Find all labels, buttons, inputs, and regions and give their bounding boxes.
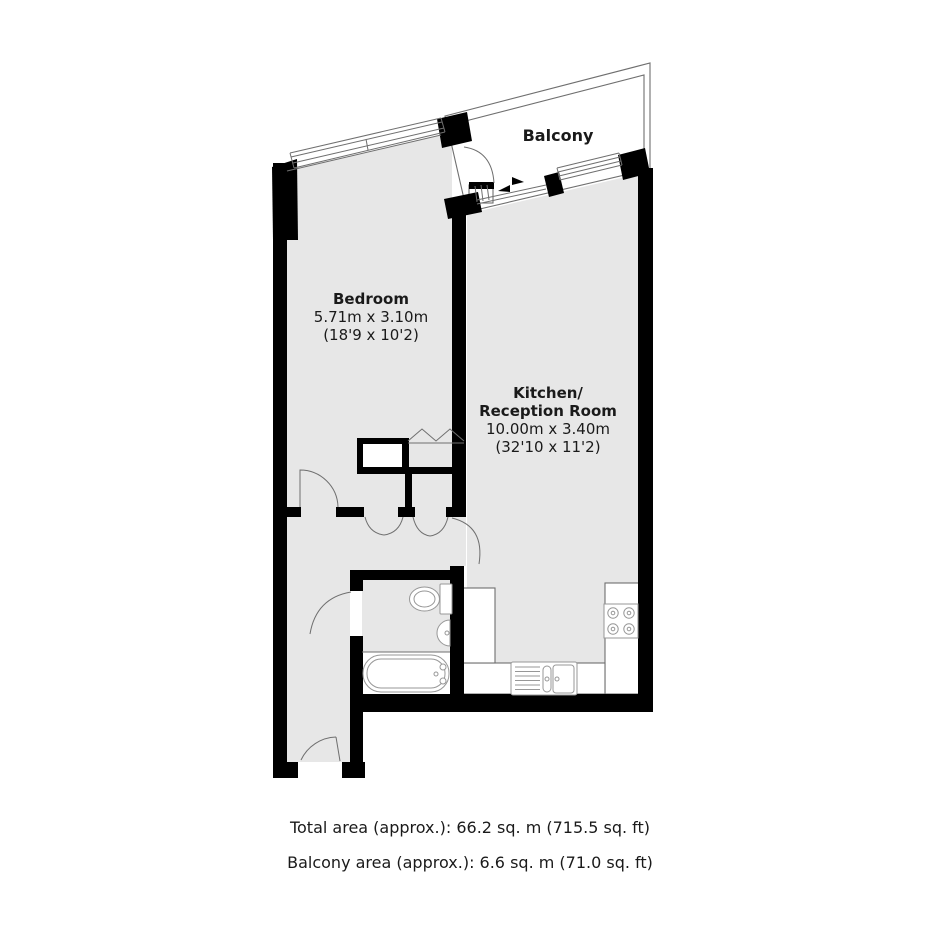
floor-plan: Balcony Bedroom 5.71m x 3.10m (18'9 x 10… <box>0 0 940 940</box>
wall-bathroom-top <box>350 570 462 580</box>
kitchen-label-line1: Kitchen/ <box>513 384 583 402</box>
wall-bedroomdoor-left-stub <box>287 507 301 517</box>
utility-closet-interior <box>363 444 402 468</box>
bathroom-floor <box>362 580 450 652</box>
wall-corridor-mid-stub <box>398 507 415 517</box>
kitchen-dims-imperial: (32'10 x 11'2) <box>495 438 600 456</box>
wall-cupboard-divider <box>405 473 412 508</box>
kitchen-label-line2: Reception Room <box>479 402 617 420</box>
balcony-label: Balcony <box>523 126 594 145</box>
bathtub-icon <box>363 655 449 692</box>
wall-closet-top <box>357 438 408 444</box>
kitchen-dims-metric: 10.00m x 3.40m <box>486 420 610 438</box>
balcony-area-text: Balcony area (approx.): 6.6 sq. m (71.0 … <box>287 853 653 872</box>
bedroom-label: Bedroom <box>333 290 409 308</box>
bedroom-dims-imperial: (18'9 x 10'2) <box>323 326 419 344</box>
wall-bottom-left-block <box>273 762 298 778</box>
wall-wardrobe-bottom <box>402 467 466 474</box>
wall-bottom <box>350 694 653 712</box>
cupboard-right-floor <box>412 473 450 507</box>
wall-closet-bottom <box>357 467 409 474</box>
wall-corridor-right-stub <box>446 507 466 517</box>
kitchen-counter-left <box>462 588 495 663</box>
wall-topleft-corner <box>272 159 298 240</box>
floor-plan-page: Balcony Bedroom 5.71m x 3.10m (18'9 x 10… <box>0 0 940 940</box>
total-area-text: Total area (approx.): 66.2 sq. m (715.5 … <box>289 818 650 837</box>
kitchen-door-gap-floor <box>450 517 466 566</box>
wall-kitchen-right <box>638 168 653 712</box>
bedroom-dims-metric: 5.71m x 3.10m <box>314 308 428 326</box>
cupboard-left-floor <box>363 473 405 507</box>
kitchen-sink-icon <box>511 662 577 695</box>
hob-icon <box>604 604 638 638</box>
wall-bedroom-bottom <box>336 507 364 517</box>
wall-left <box>273 163 287 778</box>
